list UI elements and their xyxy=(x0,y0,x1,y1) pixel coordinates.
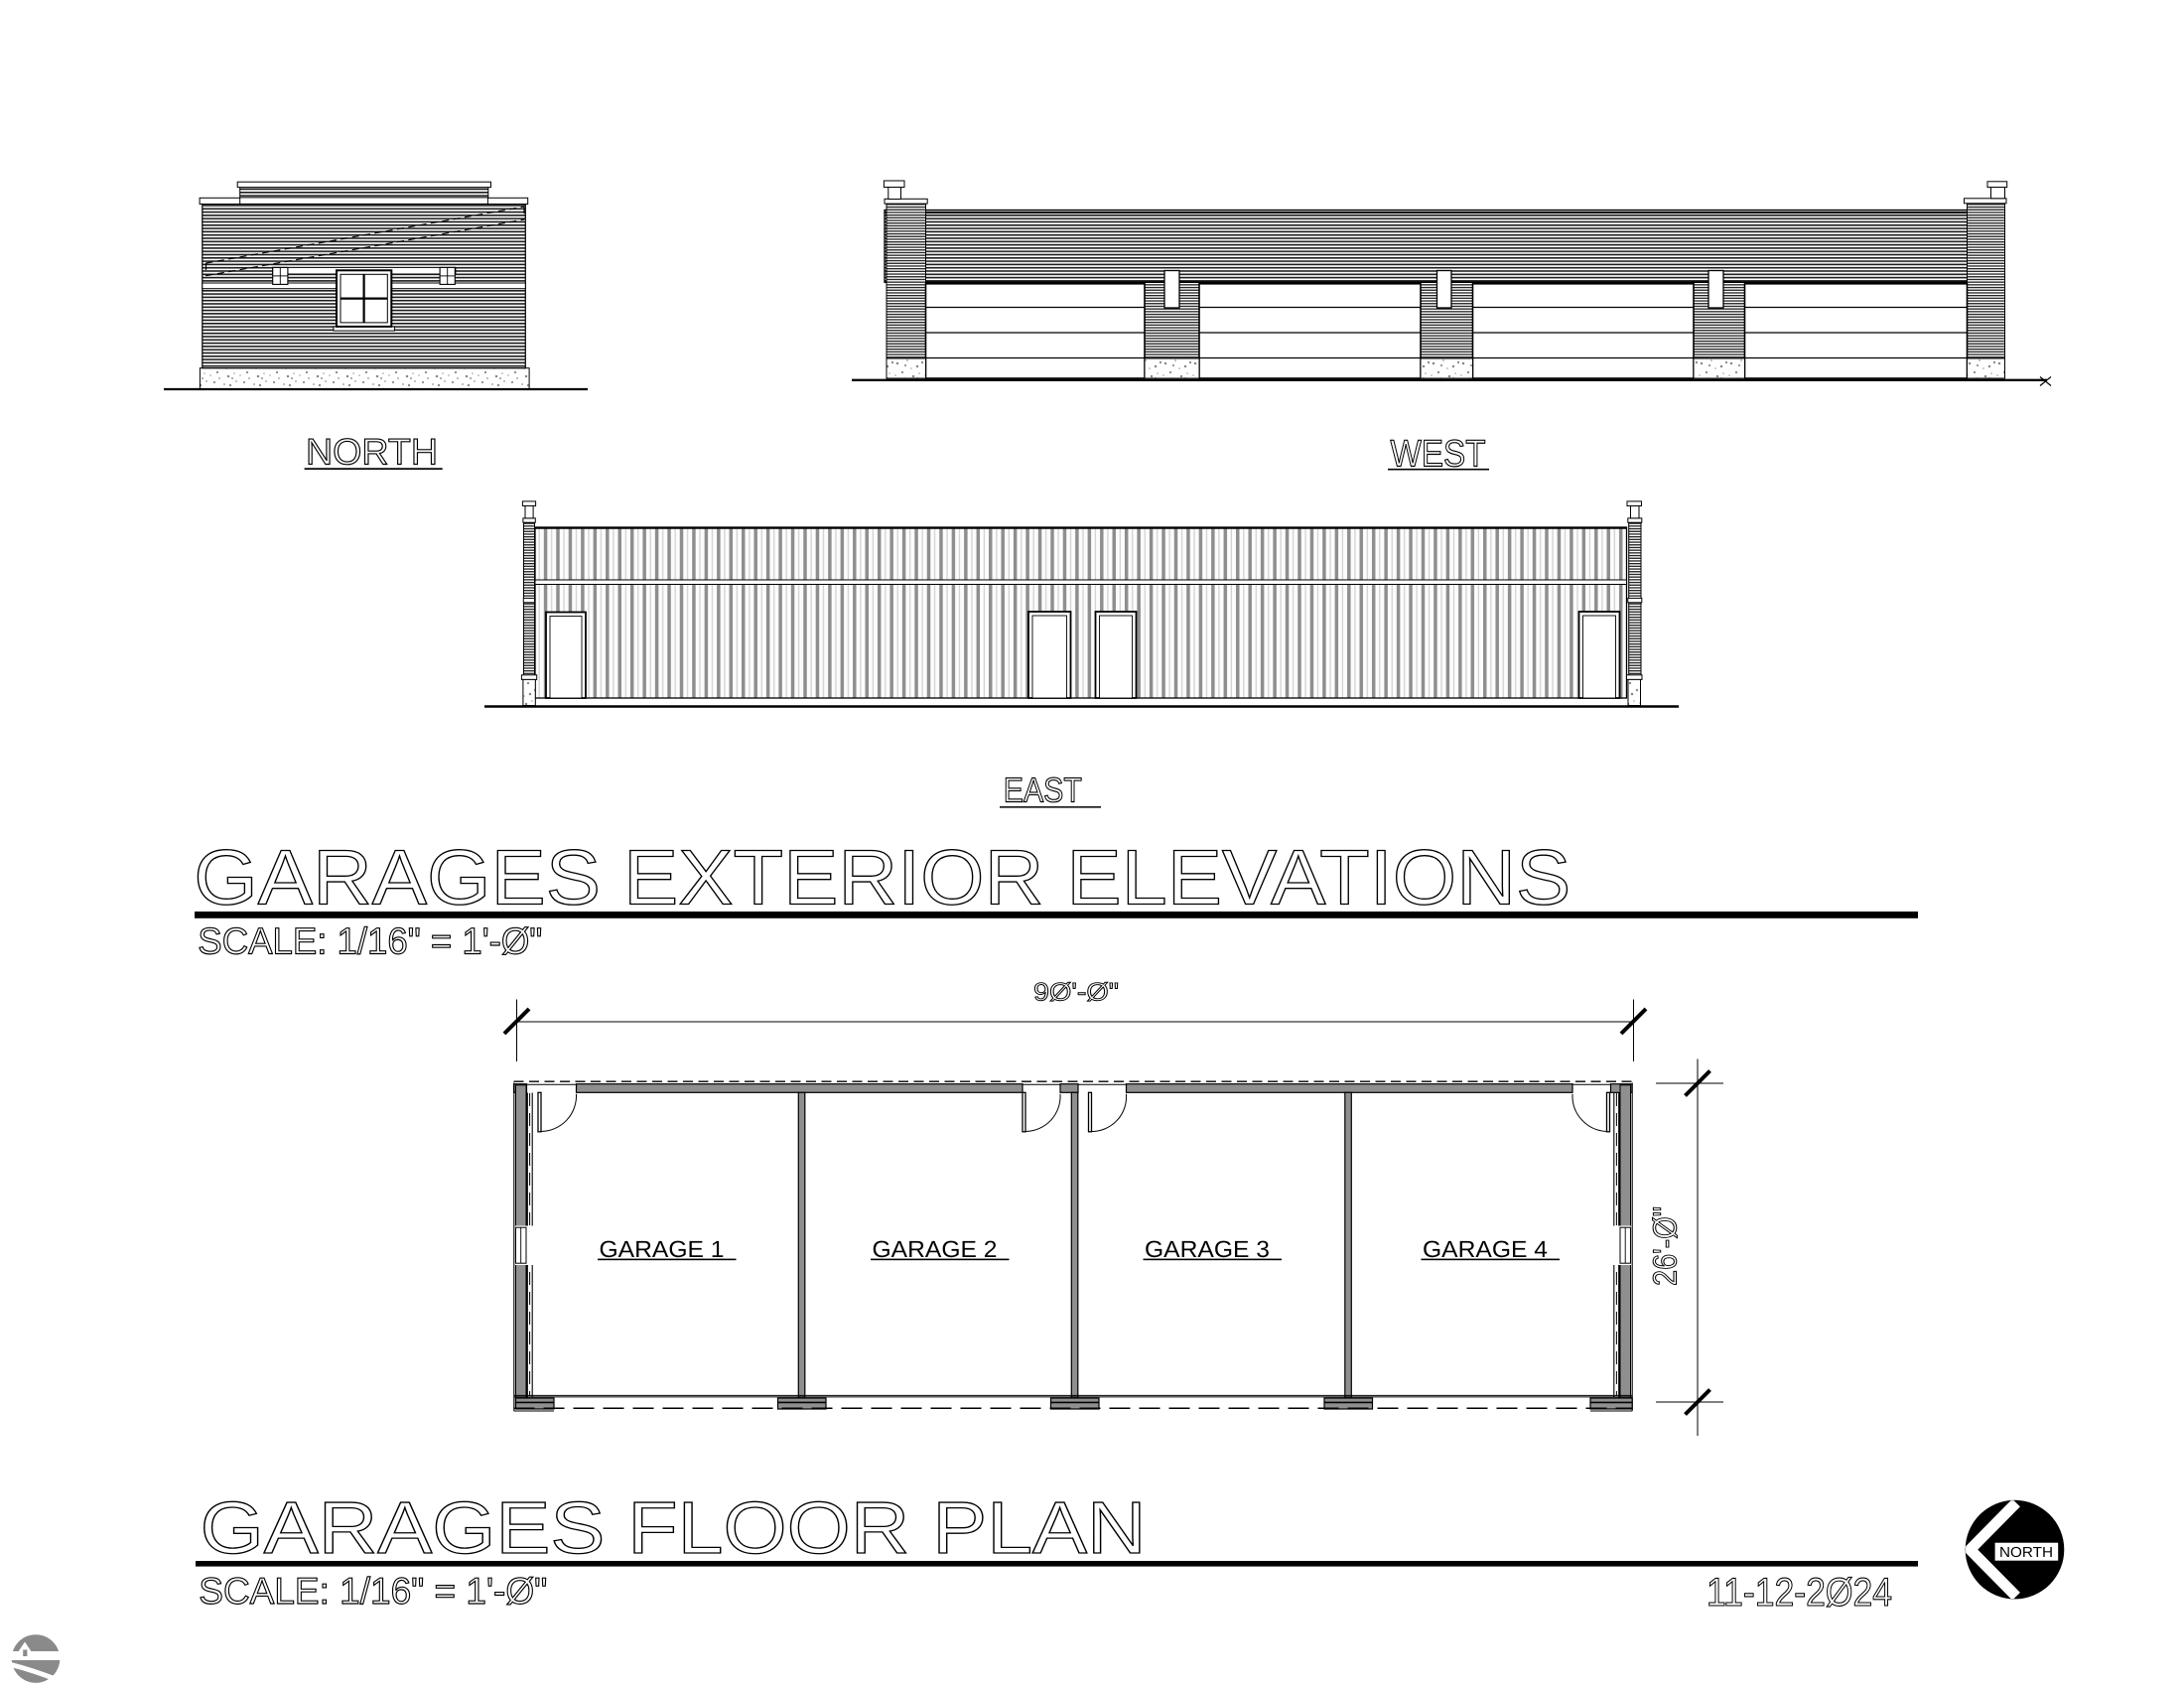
svg-text:SCALE: 1/16" = 1'-Ø": SCALE: 1/16" = 1'-Ø" xyxy=(198,920,542,962)
svg-text:GARAGE 3: GARAGE 3 xyxy=(1145,1236,1270,1262)
svg-text:26'-Ø": 26'-Ø" xyxy=(1648,1206,1685,1286)
svg-text:11-12-2Ø24: 11-12-2Ø24 xyxy=(1706,1571,1892,1615)
svg-text:GARAGE 1: GARAGE 1 xyxy=(600,1236,725,1262)
svg-text:9Ø'-Ø": 9Ø'-Ø" xyxy=(1033,978,1119,1006)
svg-text:GARAGE 2: GARAGE 2 xyxy=(873,1236,998,1262)
svg-text:NORTH: NORTH xyxy=(1999,1545,2053,1561)
svg-text:GARAGES FLOOR PLAN: GARAGES FLOOR PLAN xyxy=(201,1486,1147,1569)
svg-text:SCALE: 1/16" = 1'-Ø": SCALE: 1/16" = 1'-Ø" xyxy=(199,1570,547,1612)
svg-text:NORTH: NORTH xyxy=(306,432,438,473)
svg-text:EAST: EAST xyxy=(1004,772,1082,810)
svg-text:GARAGE 4: GARAGE 4 xyxy=(1423,1236,1548,1262)
svg-text:GARAGES EXTERIOR ELEVATIONS: GARAGES EXTERIOR ELEVATIONS xyxy=(194,834,1570,921)
